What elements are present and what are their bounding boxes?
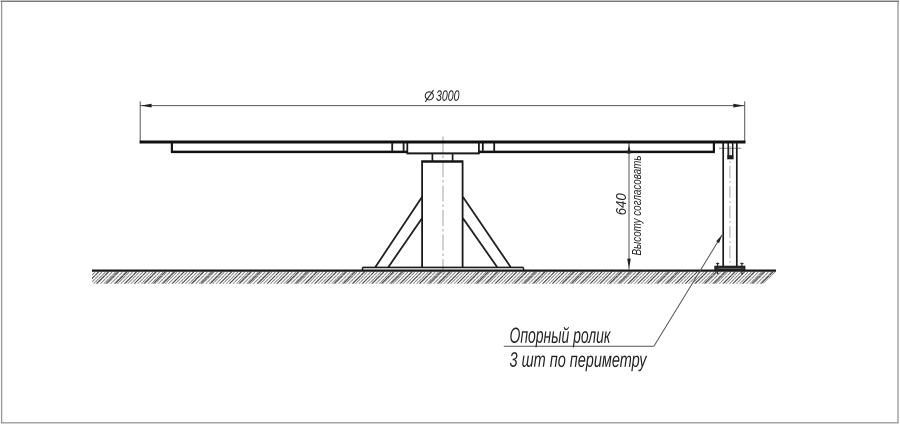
svg-text:3 шт по периметру: 3 шт по периметру	[509, 349, 647, 372]
svg-text:Опорный ролик: Опорный ролик	[509, 323, 610, 348]
svg-text:640: 640	[613, 193, 630, 216]
svg-text:3000: 3000	[436, 88, 460, 105]
svg-text:Высоту согласовать: Высоту согласовать	[630, 156, 644, 256]
